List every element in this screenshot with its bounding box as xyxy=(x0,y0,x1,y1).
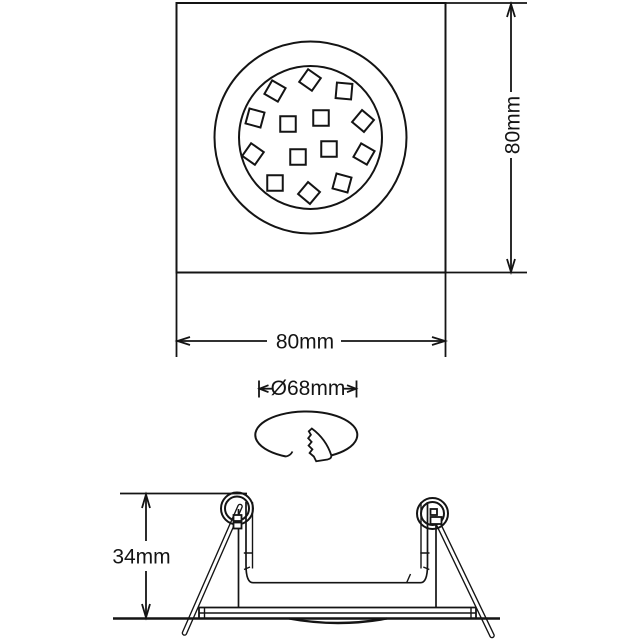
technical-drawing: 80mm 80mm Ø68mm xyxy=(0,0,640,640)
led-chip xyxy=(242,143,264,165)
dim-height: 80mm xyxy=(446,3,528,273)
spring-bracket-left xyxy=(234,515,242,521)
weld-tick-mark xyxy=(407,574,411,583)
led-chip xyxy=(336,83,353,100)
dim-height-label: 80mm xyxy=(502,96,525,154)
spring-arm-left-core xyxy=(185,507,241,634)
led-array xyxy=(242,69,374,204)
led-chip xyxy=(264,80,285,101)
spring-bracket-left2 xyxy=(234,523,242,529)
bezel-inner-circle xyxy=(239,66,382,209)
led-chip xyxy=(321,141,337,157)
dim-width-label: 80mm xyxy=(276,331,334,354)
led-chip xyxy=(313,110,329,126)
led-chip xyxy=(290,149,306,165)
led-chip xyxy=(333,174,352,193)
recess-depth-label: 34mm xyxy=(112,546,170,569)
cutout-hole-ellipse xyxy=(255,411,357,456)
led-chip xyxy=(353,143,374,164)
led-chip xyxy=(267,175,283,191)
led-chip xyxy=(352,110,374,132)
led-chip xyxy=(246,109,265,128)
fixture-face-outline xyxy=(177,3,446,273)
cutout-line-end-hook xyxy=(286,452,293,457)
led-chip xyxy=(299,69,321,91)
saw-cut-wedge-icon xyxy=(308,429,331,462)
spring-bracket-right2 xyxy=(431,517,442,524)
spring-bracket-right xyxy=(431,509,438,515)
cutout-view: Ø68mm xyxy=(255,377,357,461)
dim-depth: 34mm xyxy=(112,494,247,618)
led-chip xyxy=(280,116,296,132)
drawing-svg: 80mm 80mm Ø68mm xyxy=(0,0,640,640)
housing-outline xyxy=(246,502,428,583)
led-chip xyxy=(298,182,320,204)
top-view xyxy=(177,3,446,273)
side-view: 34mm xyxy=(112,493,500,636)
dim-width: 80mm xyxy=(177,273,446,358)
wall-bend-marks xyxy=(244,567,429,570)
cutout-diameter-label: Ø68mm xyxy=(271,377,346,400)
